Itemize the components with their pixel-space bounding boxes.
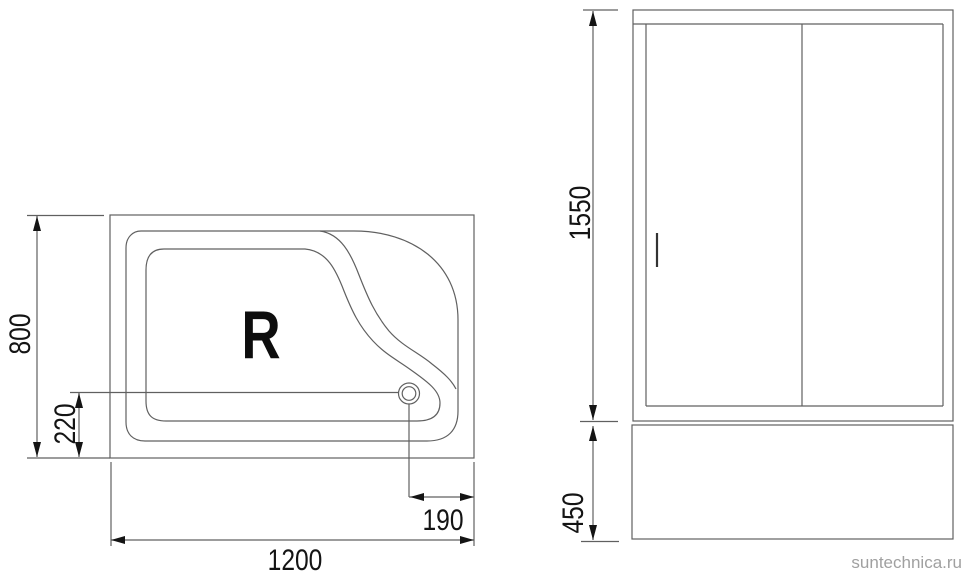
dim-label-190: 190 bbox=[422, 506, 463, 536]
tray-inner-contour bbox=[126, 231, 458, 441]
dim-label-1550: 1550 bbox=[566, 186, 596, 241]
watermark-text: suntechnica.ru bbox=[851, 554, 962, 573]
shower-cabin-technical-drawing: 800 220 190 1200 1550 450 R suntechnica.… bbox=[0, 0, 970, 577]
arrowhead-left bbox=[410, 493, 424, 501]
side-view-drawing bbox=[632, 10, 953, 539]
drain-inner-circle bbox=[402, 387, 416, 401]
tray-orientation-label: R bbox=[241, 301, 280, 369]
drawing-linework bbox=[0, 0, 970, 577]
dim-label-1200: 1200 bbox=[268, 546, 323, 576]
dim-label-220: 220 bbox=[51, 403, 81, 444]
arrowhead-right bbox=[460, 536, 474, 544]
arrowhead-up bbox=[589, 11, 597, 26]
arrowhead-left bbox=[111, 536, 125, 544]
arrowhead-up bbox=[33, 216, 41, 231]
basin-contour bbox=[146, 249, 440, 421]
arrowhead-up bbox=[589, 426, 597, 441]
dimension-220 bbox=[70, 393, 399, 458]
top-view-drawing bbox=[110, 215, 474, 458]
dimension-1200 bbox=[111, 462, 474, 546]
arrowhead-down bbox=[589, 525, 597, 540]
tray-base-panel bbox=[632, 425, 953, 539]
enclosure-outer-frame bbox=[633, 10, 953, 421]
arrowhead-right bbox=[460, 493, 474, 501]
seat-divider-curve bbox=[320, 231, 456, 389]
arrowhead-down bbox=[589, 405, 597, 420]
arrowhead-down bbox=[33, 442, 41, 457]
dim-label-800: 800 bbox=[6, 313, 36, 354]
dim-label-450: 450 bbox=[559, 492, 589, 533]
dimension-190 bbox=[409, 404, 474, 501]
